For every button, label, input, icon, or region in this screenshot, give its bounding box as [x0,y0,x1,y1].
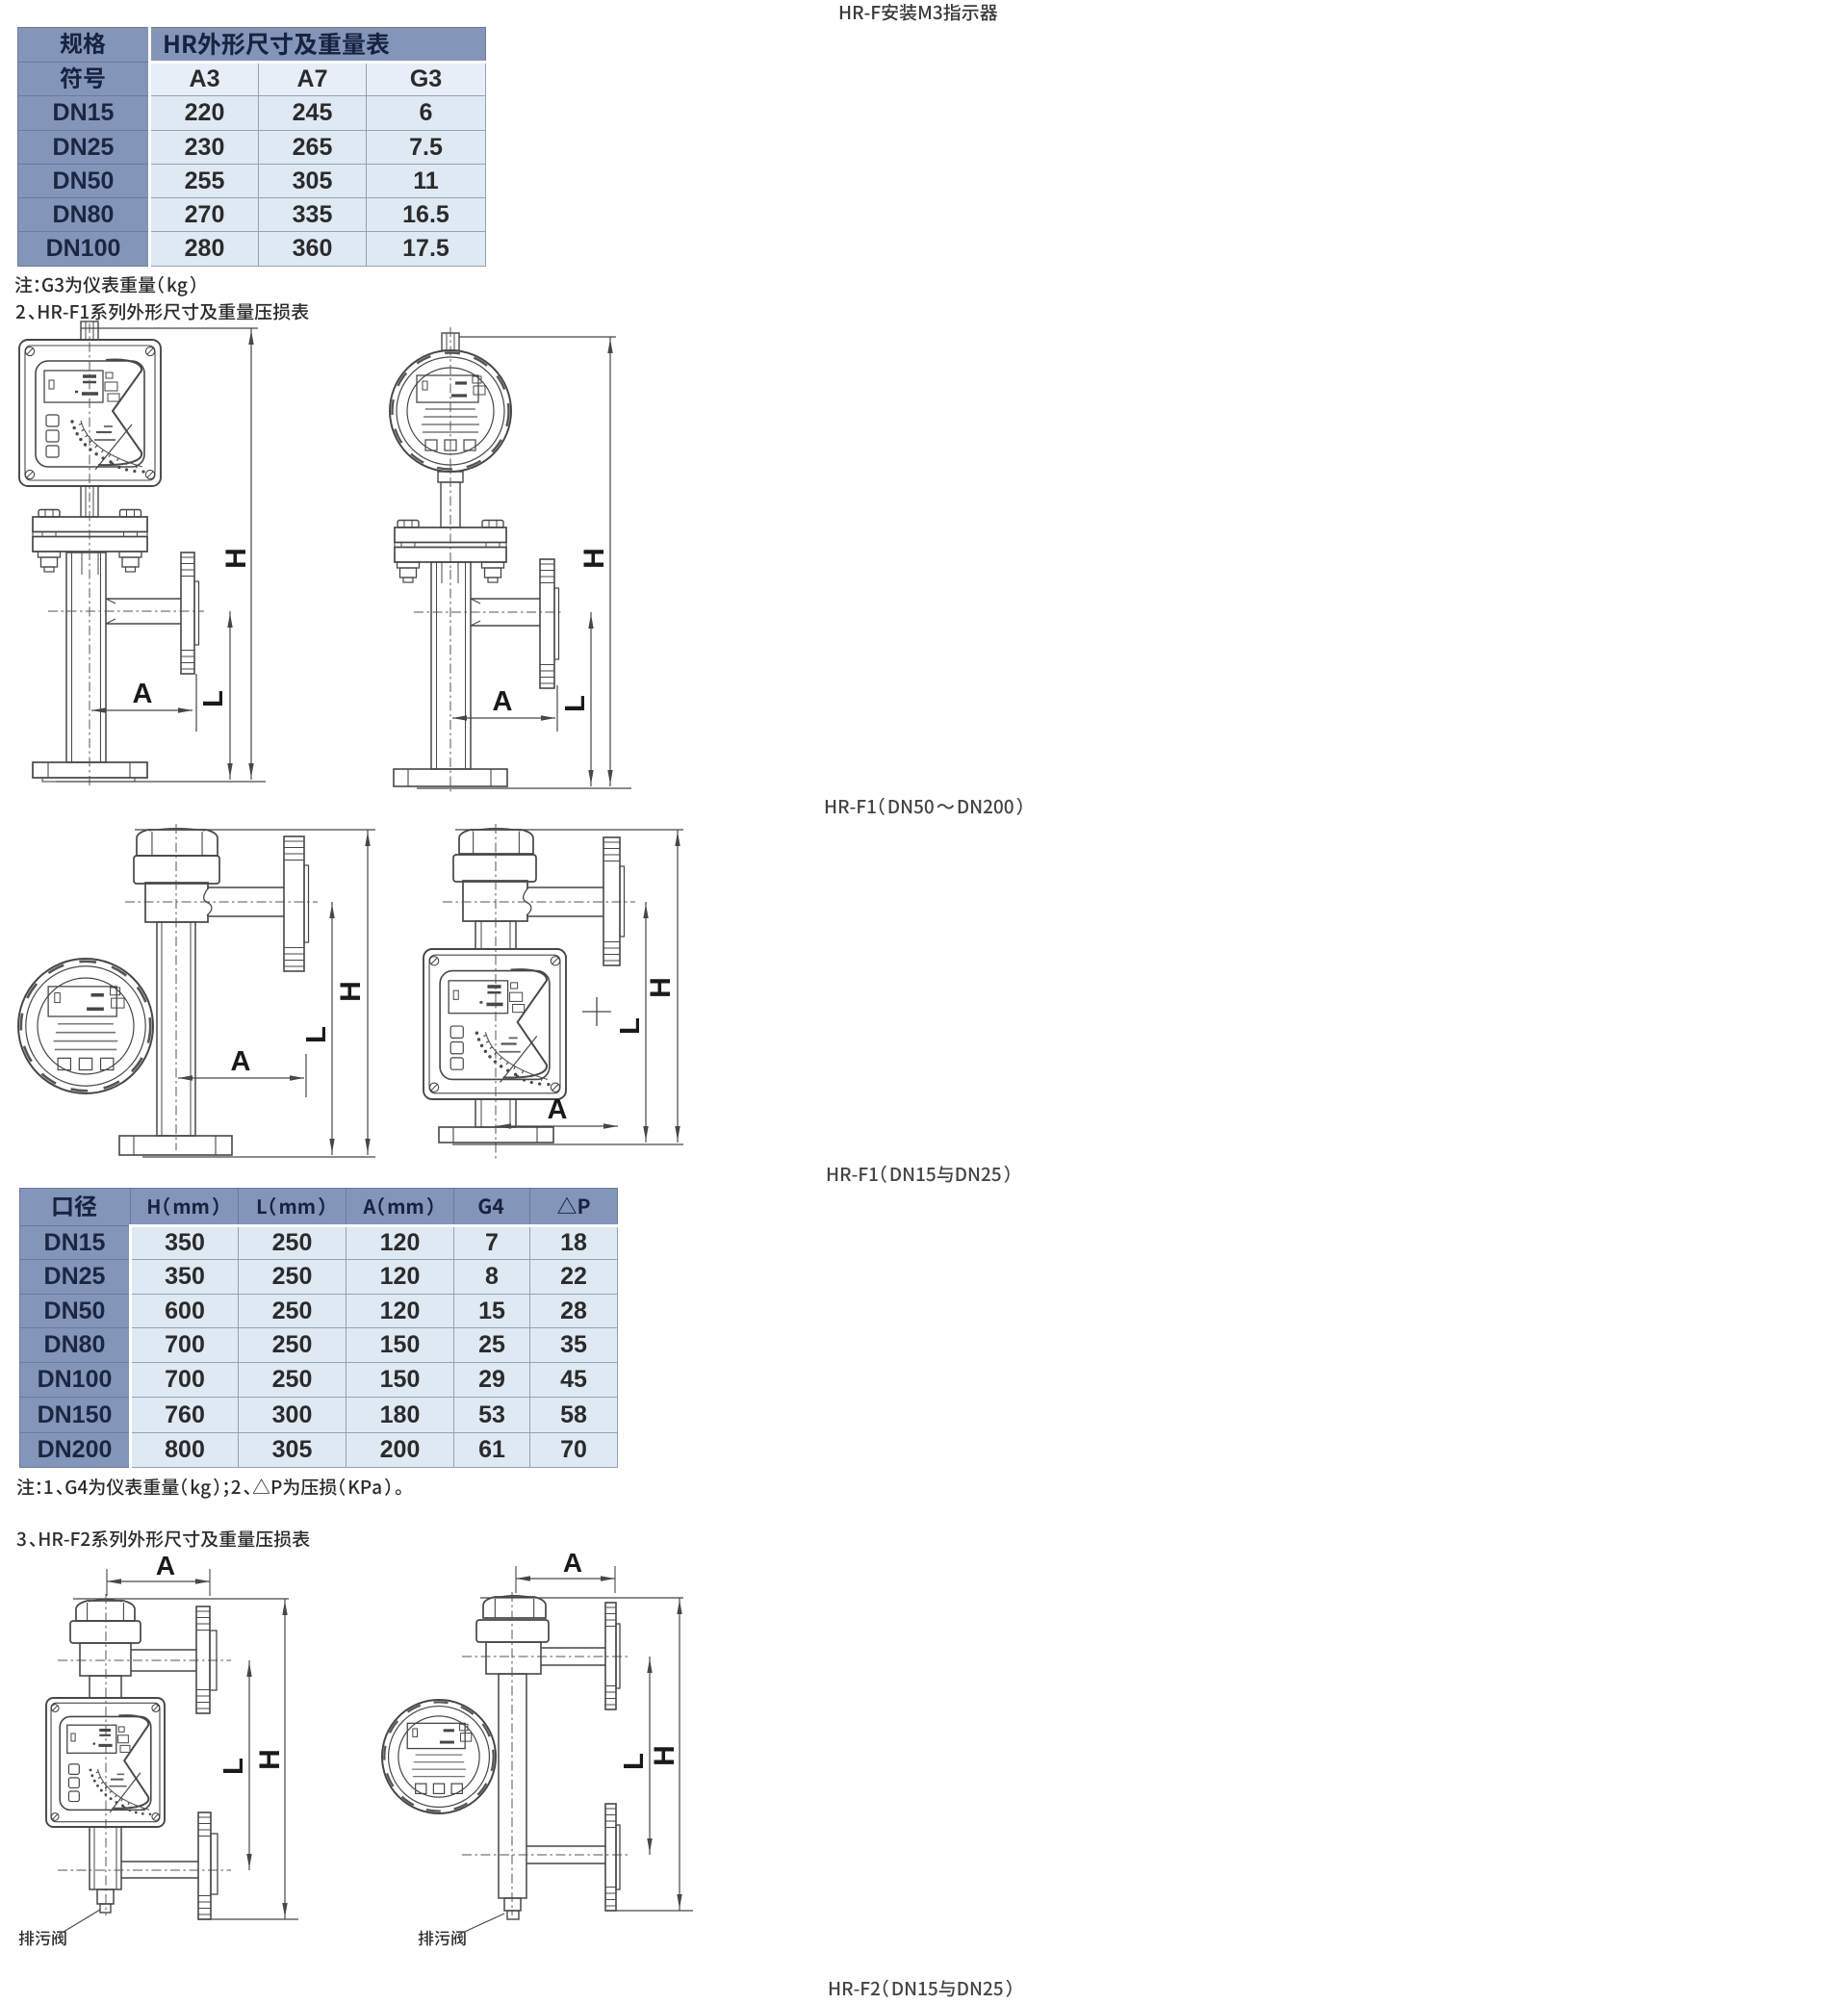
svg-text:A: A [493,686,513,717]
svg-text:H: H [578,548,610,569]
svg-text:A: A [548,1094,568,1125]
svg-text:L: L [615,1017,646,1035]
svg-text:H: H [649,1745,680,1766]
svg-text:A: A [231,1046,251,1077]
svg-text:L: L [560,695,591,712]
svg-text:A: A [563,1548,582,1578]
svg-text:H: H [335,981,367,1002]
svg-text:H: H [645,977,677,998]
svg-text:H: H [254,1749,286,1770]
svg-text:L: L [619,1753,650,1770]
svg-text:A: A [156,1551,175,1580]
svg-text:L: L [301,1026,332,1043]
svg-text:L: L [218,1758,249,1775]
svg-text:A: A [133,679,153,709]
svg-text:L: L [198,690,229,707]
svg-text:H: H [220,548,252,569]
